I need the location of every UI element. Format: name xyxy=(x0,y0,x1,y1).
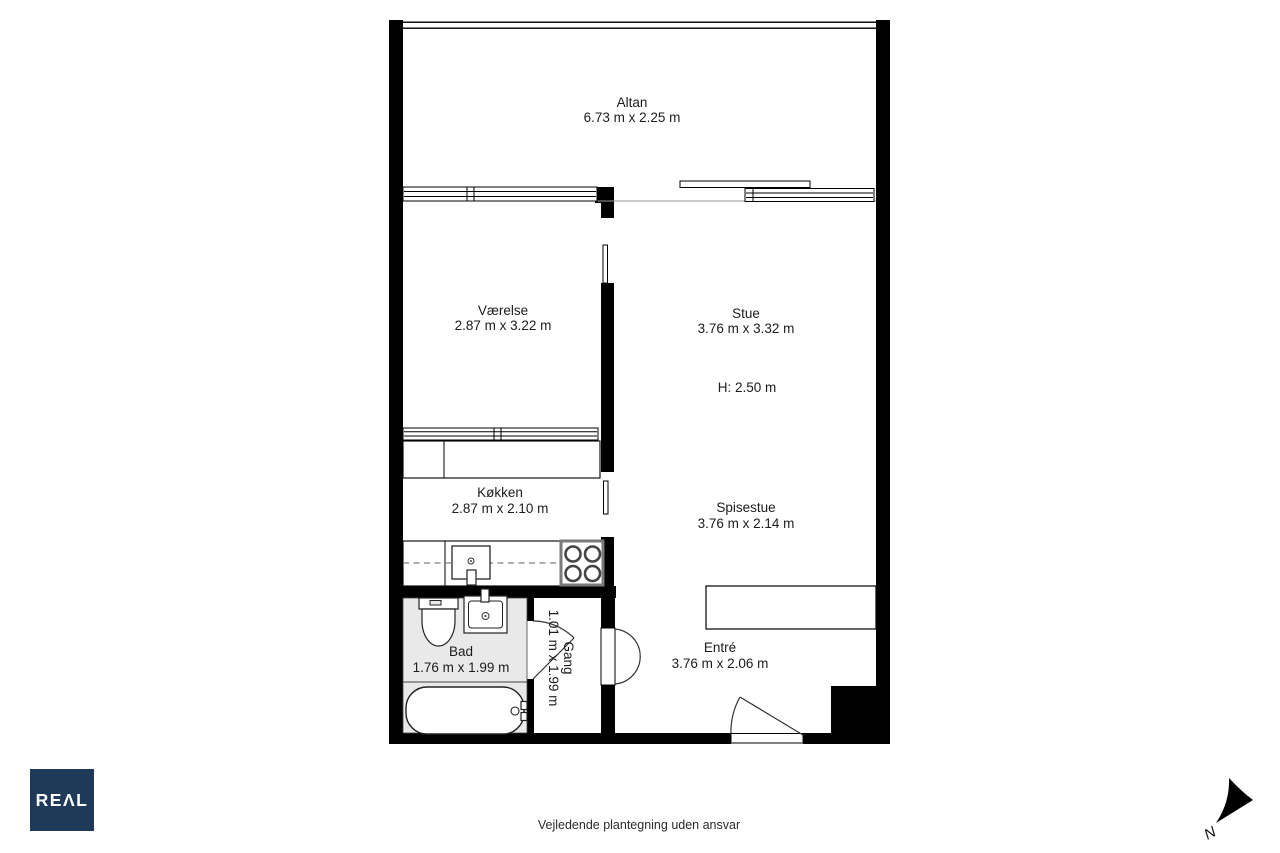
kitchen-sink-drain-dot xyxy=(470,560,472,562)
room-label-gang: Gang xyxy=(561,641,576,674)
kitchen-upper-cabinets xyxy=(403,441,600,478)
room-label-altan: Altan xyxy=(617,95,648,110)
room-dims-stue: 3.76 m x 3.32 m xyxy=(698,321,795,336)
real-logo-text: REΛL xyxy=(36,790,89,810)
kitchen-sink-faucet xyxy=(467,570,476,585)
room-label-entre: Entré xyxy=(704,640,736,655)
room-label-kokken: Køkken xyxy=(477,485,523,500)
floorplan-page: Altan 6.73 m x 2.25 m Værelse 2.87 m x 3… xyxy=(0,0,1280,853)
bottom-wall-right xyxy=(803,733,890,744)
wall-gang-entre-bottom xyxy=(601,685,615,733)
wall-vaerelse-stue-main xyxy=(601,283,614,472)
wardrobe xyxy=(706,586,876,629)
bathtub-tap-top xyxy=(521,702,527,710)
vaerelse-balcony-window xyxy=(403,187,597,201)
bathroom-sink-faucet xyxy=(481,589,489,602)
right-wall xyxy=(876,20,890,744)
room-dims-altan: 6.73 m x 2.25 m xyxy=(584,110,681,125)
stue-door-leaf xyxy=(603,245,608,283)
windows xyxy=(403,181,876,440)
balcony-railing-inner xyxy=(403,28,876,29)
front-door-arc xyxy=(731,697,740,735)
left-wall xyxy=(389,20,403,744)
disclaimer-text: Vejledende plantegning uden ansvar xyxy=(538,818,740,832)
toilet-button xyxy=(430,601,441,606)
sliding-door-panel-inner xyxy=(745,189,874,202)
bathtub-tap-bottom xyxy=(521,713,527,721)
room-dims-vaerelse: 2.87 m x 3.22 m xyxy=(455,318,552,333)
wall-bad-gang-bottom xyxy=(527,679,534,733)
north-indicator: N xyxy=(1201,778,1253,843)
room-label-spisestue: Spisestue xyxy=(716,500,775,515)
front-door-leaf xyxy=(740,697,803,735)
gang-entre-door-panel xyxy=(601,628,615,685)
north-label: N xyxy=(1201,823,1219,843)
room-label-bad: Bad xyxy=(449,644,473,659)
balcony-railing-outer xyxy=(403,22,876,23)
wall-vaerelse-stue-top xyxy=(601,187,614,218)
gang-entre-door-arc xyxy=(615,629,640,684)
kitchen-door-leaf xyxy=(604,481,609,514)
gang-label-group: Gang 1.01 m x 1.99 m xyxy=(546,610,576,707)
room-dims-gang: 1.01 m x 1.99 m xyxy=(546,610,561,707)
sliding-door-panel-outer xyxy=(680,181,810,188)
bathroom-sink-drain-dot xyxy=(484,615,486,617)
room-dims-kokken: 2.87 m x 2.10 m xyxy=(452,501,549,516)
north-arrow-icon xyxy=(1216,778,1253,823)
room-dims-entre: 3.76 m x 2.06 m xyxy=(672,656,769,671)
room-dims-spisestue: 3.76 m x 2.14 m xyxy=(698,516,795,531)
bathtub xyxy=(406,687,524,734)
room-dims-bad: 1.76 m x 1.99 m xyxy=(413,660,510,675)
room-label-vaerelse: Værelse xyxy=(478,303,528,318)
bathtub-faucet xyxy=(511,707,519,715)
room-label-stue: Stue xyxy=(732,306,760,321)
wall-bad-gang-top xyxy=(527,598,534,621)
shaft-block xyxy=(831,686,876,733)
front-door-panel xyxy=(731,734,803,744)
floor-plan-svg: Altan 6.73 m x 2.25 m Værelse 2.87 m x 3… xyxy=(0,0,1280,853)
wall-gang-entre-top xyxy=(601,598,615,628)
ceiling-height-label: H: 2.50 m xyxy=(718,380,777,395)
entry xyxy=(706,586,876,629)
